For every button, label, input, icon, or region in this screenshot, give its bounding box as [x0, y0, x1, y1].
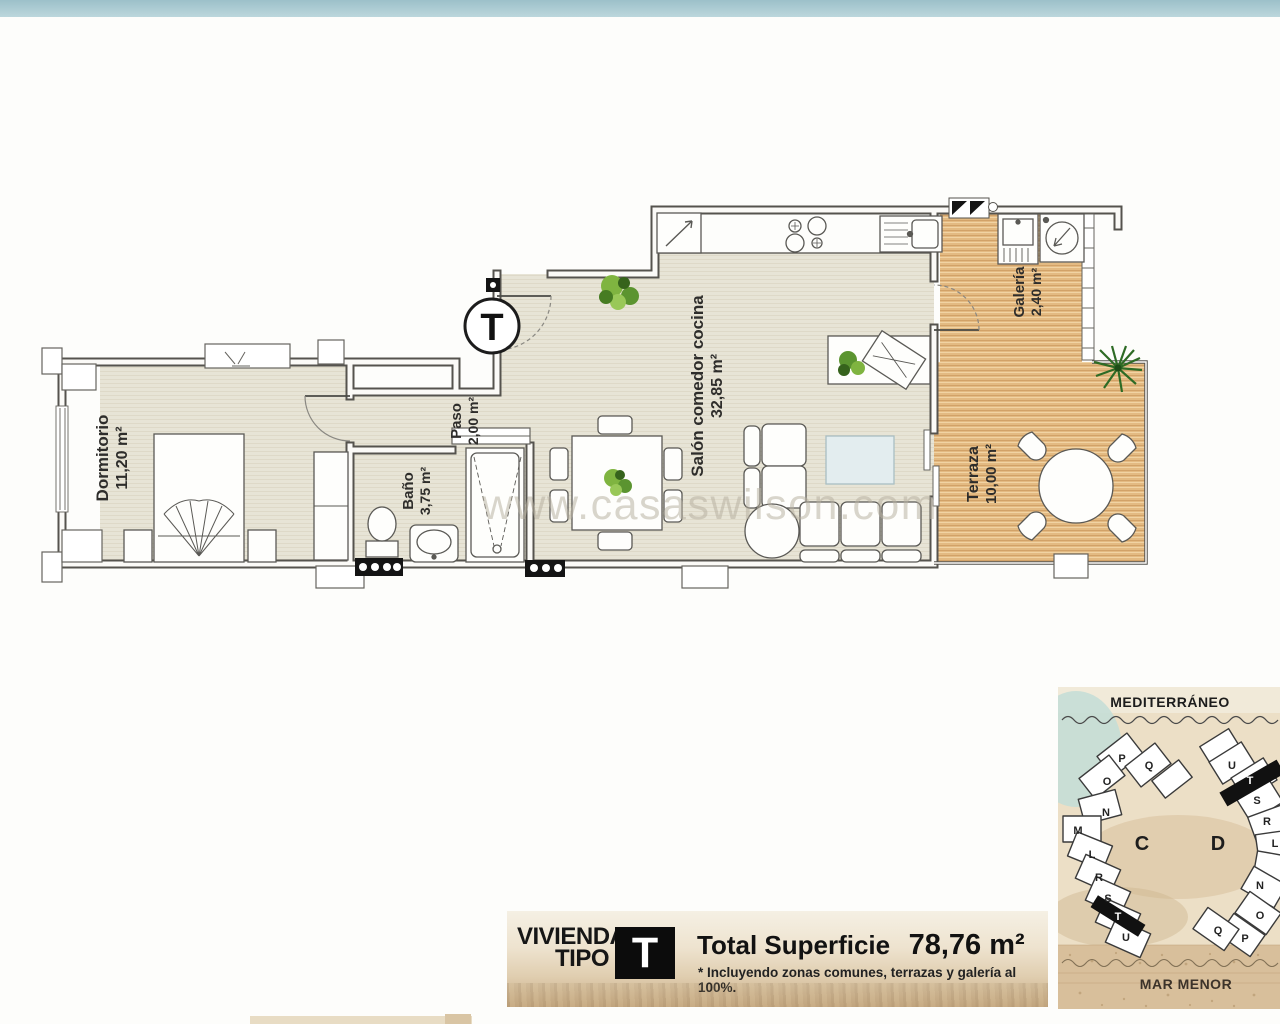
utility-sink-icon [998, 214, 1038, 264]
title-banner: VIVIENDA TIPO T Total Superficie 78,76 m… [507, 911, 1048, 1007]
unit-letter: L [1089, 849, 1096, 861]
bed-icon [154, 434, 244, 562]
nightstand-icon [248, 530, 276, 562]
room-label-paso: Paso [448, 403, 465, 439]
facade-bump [682, 566, 728, 588]
dwelling-label: VIVIENDA TIPO [517, 926, 609, 970]
unit-letter: R [1263, 816, 1271, 828]
pillar [42, 348, 62, 374]
entrance-type-marker: T [465, 299, 519, 353]
unit-letter: S [1253, 795, 1260, 807]
terrace-sliding-door [924, 430, 930, 470]
entrance-type-letter: T [480, 307, 503, 349]
sea-label-mediterraneo: MEDITERRÁNEO [1110, 694, 1230, 710]
unit-letter: Q [1145, 760, 1154, 772]
room-label-dormitorio: Dormitorio [93, 415, 112, 502]
room-label-bano: Baño [400, 472, 417, 510]
bedroom-window [56, 406, 68, 512]
toilet-icon [366, 541, 398, 557]
room-label-salon: Salón comedor cocina [688, 295, 707, 477]
total-surface-line: Total Superficie 78,76 m² [697, 929, 1025, 962]
unit-letter-highlighted: T [1115, 911, 1122, 923]
chair-icon [664, 448, 682, 480]
bottom-strip-accent [445, 1014, 471, 1024]
unit-letter-highlighted: T [1247, 775, 1254, 787]
unit-letter: R [1095, 872, 1103, 884]
chair-icon [598, 416, 632, 434]
type-letter-badge: T [615, 927, 675, 979]
unit-letter: P [1118, 753, 1125, 765]
sofa-icon [744, 426, 760, 466]
unit-letter: N [1102, 807, 1110, 819]
sea-label-mar-menor: MAR MENOR [1140, 976, 1232, 992]
wall-niche [205, 344, 290, 368]
unit-letter: L [1272, 838, 1279, 850]
unit-letter: N [1256, 880, 1264, 892]
chair-icon [550, 448, 568, 480]
sofa-icon [800, 550, 839, 562]
room-area-terraza: 10,00 m² [983, 444, 1000, 504]
watermark: www.casaswilson.com [481, 481, 938, 529]
room-area-dormitorio: 11,20 m² [114, 426, 131, 489]
toilet-icon [368, 507, 396, 541]
room-area-bano: 3,75 m² [417, 467, 433, 516]
pillar [42, 552, 62, 582]
unit-letter: P [1241, 933, 1248, 945]
room-area-salon: 32,85 m² [709, 354, 726, 418]
site-map: P Q O N M L R S T U U T S R L N O Q P C … [1058, 687, 1280, 1009]
chair-icon [598, 532, 632, 550]
unit-letter: U [1228, 760, 1236, 772]
room-label-galeria: Galería [1011, 266, 1028, 318]
block-c-label: C [1135, 833, 1149, 855]
nightstand-icon [124, 530, 152, 562]
facade-bump [1054, 554, 1088, 578]
sofa-icon [762, 424, 806, 466]
total-surface-value: 78,76 m² [909, 929, 1025, 961]
room-area-paso: 2,00 m² [465, 397, 481, 446]
site-map-svg: P Q O N M L R S T U U T S R L N O Q P C … [1058, 687, 1280, 1009]
sofa-icon [841, 550, 880, 562]
bedroom-closet [62, 530, 102, 562]
unit-letter: Q [1214, 925, 1223, 937]
floor-plan: T Dormitorio 11,20 m² Paso 2,00 m² Baño … [0, 0, 1280, 650]
dwelling-label-line2: TIPO [517, 948, 609, 970]
bedroom-closet [62, 364, 96, 390]
unit-letter: M [1073, 825, 1082, 837]
terrace-table-icon [1039, 449, 1113, 523]
washing-machine-icon [1040, 214, 1084, 262]
total-surface-label: Total Superficie [697, 930, 890, 960]
bottom-strip [250, 1016, 472, 1024]
sofa-icon [882, 550, 921, 562]
wall-bump [318, 340, 344, 364]
unit-letter: S [1104, 893, 1111, 905]
banner-footnote: * Incluyendo zonas comunes, terrazas y g… [698, 965, 1048, 995]
unit-letter: O [1103, 776, 1112, 788]
sink-icon [880, 216, 942, 252]
unit-letter: O [1256, 910, 1265, 922]
block-d-label: D [1211, 833, 1225, 855]
room-area-galeria: 2,40 m² [1028, 268, 1044, 317]
room-label-terraza: Terraza [965, 446, 982, 502]
unit-letter: U [1122, 932, 1130, 944]
coffee-table-icon [826, 436, 894, 484]
